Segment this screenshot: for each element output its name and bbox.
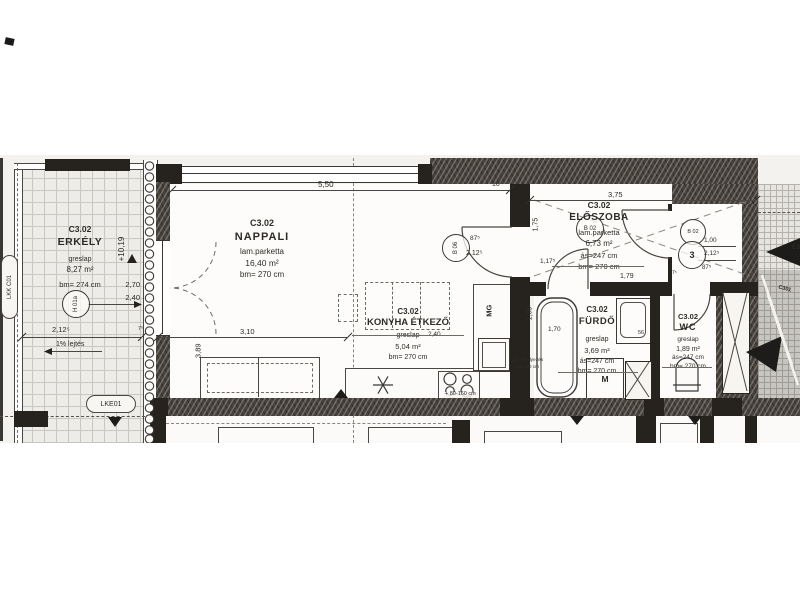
dim-erkely-212: 2,12⁵ — [52, 326, 70, 334]
nappali-code: C3.02 — [192, 219, 332, 228]
balcony-code2-text: LKE01 — [100, 401, 121, 408]
balcony-door-window — [156, 240, 170, 336]
dim-entry-2125: 2,12⁵ — [704, 251, 719, 258]
door-b02b-text: B 02 — [687, 229, 698, 235]
shaft-right — [722, 292, 750, 394]
konyha-name: KONYHA ÉTKEZŐ — [350, 318, 466, 328]
dim-389: 3,89 — [194, 331, 202, 371]
entry-number-text: 3 — [689, 250, 694, 260]
konyha-area: 5,04 m² — [350, 343, 466, 351]
nappali-area: 16,40 m² — [192, 259, 332, 268]
wall-bottom-chunk-4 — [712, 398, 742, 416]
balcony-door-tag: H 01a — [62, 290, 90, 318]
dim-170: 1,70 — [548, 327, 561, 334]
furdo-strike — [558, 372, 638, 373]
wall-bottom-chunk-2 — [500, 398, 534, 416]
bed-mid-line — [258, 357, 259, 397]
dim-10: 10 — [492, 181, 500, 188]
eloszoba-179: 1,79 — [620, 273, 634, 280]
dim-erkely-75: 7⁵ — [138, 327, 143, 333]
wc-name: WC — [660, 323, 716, 332]
range-note: + 80-160 cm — [444, 392, 477, 398]
window-band-top — [170, 166, 430, 183]
balcony-bottom-wall — [14, 411, 48, 427]
washing-machine-label: M — [601, 374, 608, 384]
lower-stub-5 — [745, 416, 757, 443]
dim-erkely-270: 2,70 — [104, 281, 140, 289]
dim-erkely-240: 2,40 — [104, 294, 140, 302]
wc-as: ás=247 cm — [660, 355, 716, 362]
eloszoba-code: C3.02 — [544, 201, 654, 210]
dim-550: 5,50 — [318, 181, 334, 189]
bed-inner-dashed — [207, 363, 313, 393]
dim-line-310 — [158, 337, 348, 338]
balcony-code2-tag: LKE01 — [86, 395, 136, 413]
lower-stub-4 — [700, 416, 714, 443]
balcony-door-tag-text: H 01a — [73, 296, 79, 312]
dim-310: 3,10 — [240, 328, 255, 336]
dim-entry-75: 7⁵ — [672, 271, 677, 276]
wall-bottom-chunk-1 — [150, 398, 168, 416]
wall-niche-right — [742, 204, 758, 282]
dim-entry-100: 1,00 — [704, 238, 717, 245]
balcony-code-tag: LKK C01 — [1, 255, 18, 319]
door-b06-text: B 06 — [453, 242, 459, 254]
dishwasher-label: MG — [485, 296, 493, 326]
scan-artifact — [4, 37, 14, 46]
shaft-furdo — [625, 361, 652, 400]
corner-stub-topleft — [156, 164, 172, 182]
lower-stub-3 — [636, 416, 656, 443]
nappali-floor: lam.parketta — [192, 248, 332, 256]
entry-partition-top — [668, 204, 672, 211]
window-band-mid-line — [170, 173, 430, 174]
window-jamb-right — [418, 164, 432, 184]
konyha-strike — [352, 335, 464, 336]
dim-line-erkely — [22, 337, 142, 338]
dim-105: 1,05 — [527, 294, 534, 334]
balcony-top-wall — [45, 159, 130, 171]
konyha-bm: bm= 270 cm — [350, 354, 466, 361]
door-b06-opening — [510, 227, 530, 277]
kitchen-counter-bottom — [345, 368, 512, 400]
floor-plan-scan: M — [0, 0, 800, 600]
furdo-name: FÜRDŐ — [562, 317, 632, 327]
wall-top-facade — [430, 158, 758, 184]
wall-bottom-party — [150, 398, 800, 416]
furdo-as: ás=247 cm — [562, 358, 632, 365]
furdo-area: 3,69 m² — [562, 347, 632, 355]
eloszoba-floor: lam.parketta — [544, 229, 654, 237]
lower-furniture-3 — [484, 431, 562, 443]
door-b06-tag: B 06 — [442, 234, 470, 262]
balcony-code-text: LKK C01 — [7, 275, 13, 299]
lower-stub-2 — [452, 420, 470, 443]
dim-elevation: +10,19 — [118, 221, 126, 277]
konyha-code: C3.02 — [350, 308, 466, 316]
wc-strike — [662, 367, 712, 368]
eloszoba-area: 6,73 m² — [544, 240, 654, 248]
dim-door-875: 87⁵ — [470, 236, 480, 243]
nappali-name: NAPPALI — [192, 232, 332, 243]
lower-furniture-1 — [218, 427, 314, 443]
wc-floor: greslap — [660, 337, 716, 344]
lower-stub-1 — [150, 416, 166, 443]
eloszoba-name: ELŐSZOBA — [544, 213, 654, 223]
slope-note: 1% lejtés — [56, 341, 84, 348]
section-label-a: C301 — [792, 245, 800, 251]
dim-375-label: 3,75 — [608, 191, 623, 199]
eloszoba-as: ás=247 cm — [544, 252, 654, 260]
floor-plan-sheet: M — [0, 155, 800, 443]
nappali-bm: bm= 270 cm — [192, 271, 332, 279]
eloszoba-strike — [552, 266, 644, 267]
dim-basin-56: 56 — [638, 331, 644, 337]
dim-door-2125: 2,12⁵ — [466, 250, 483, 257]
fridge-inner — [482, 342, 506, 368]
dim-175: 1,75 — [533, 205, 540, 245]
wc-area: 1,89 m² — [660, 346, 716, 353]
door-furdo-opening — [546, 282, 590, 296]
dim-entry-875: 87⁵ — [702, 265, 711, 271]
furdo-floor: greslap — [562, 336, 632, 343]
balcony-door-glass-line — [162, 240, 163, 334]
wc-code: C3.02 — [660, 313, 716, 321]
door-wc-opening — [672, 282, 710, 296]
lower-furniture-2 — [368, 427, 454, 443]
dim-1175: 1,17⁵ — [540, 259, 555, 266]
furdo-code: C3.02 — [562, 306, 632, 314]
corridor-axis — [758, 212, 800, 213]
dim-line-550 — [172, 190, 510, 191]
lower-furniture-4 — [660, 423, 698, 443]
wall-bottom-chunk-3 — [644, 398, 664, 416]
gk-note-1: gk. elhelyezés — [508, 359, 548, 364]
wall-niche-top — [672, 184, 758, 204]
gk-note-2: pv= 80 cm — [508, 366, 548, 371]
lower-dash-line — [166, 423, 446, 424]
